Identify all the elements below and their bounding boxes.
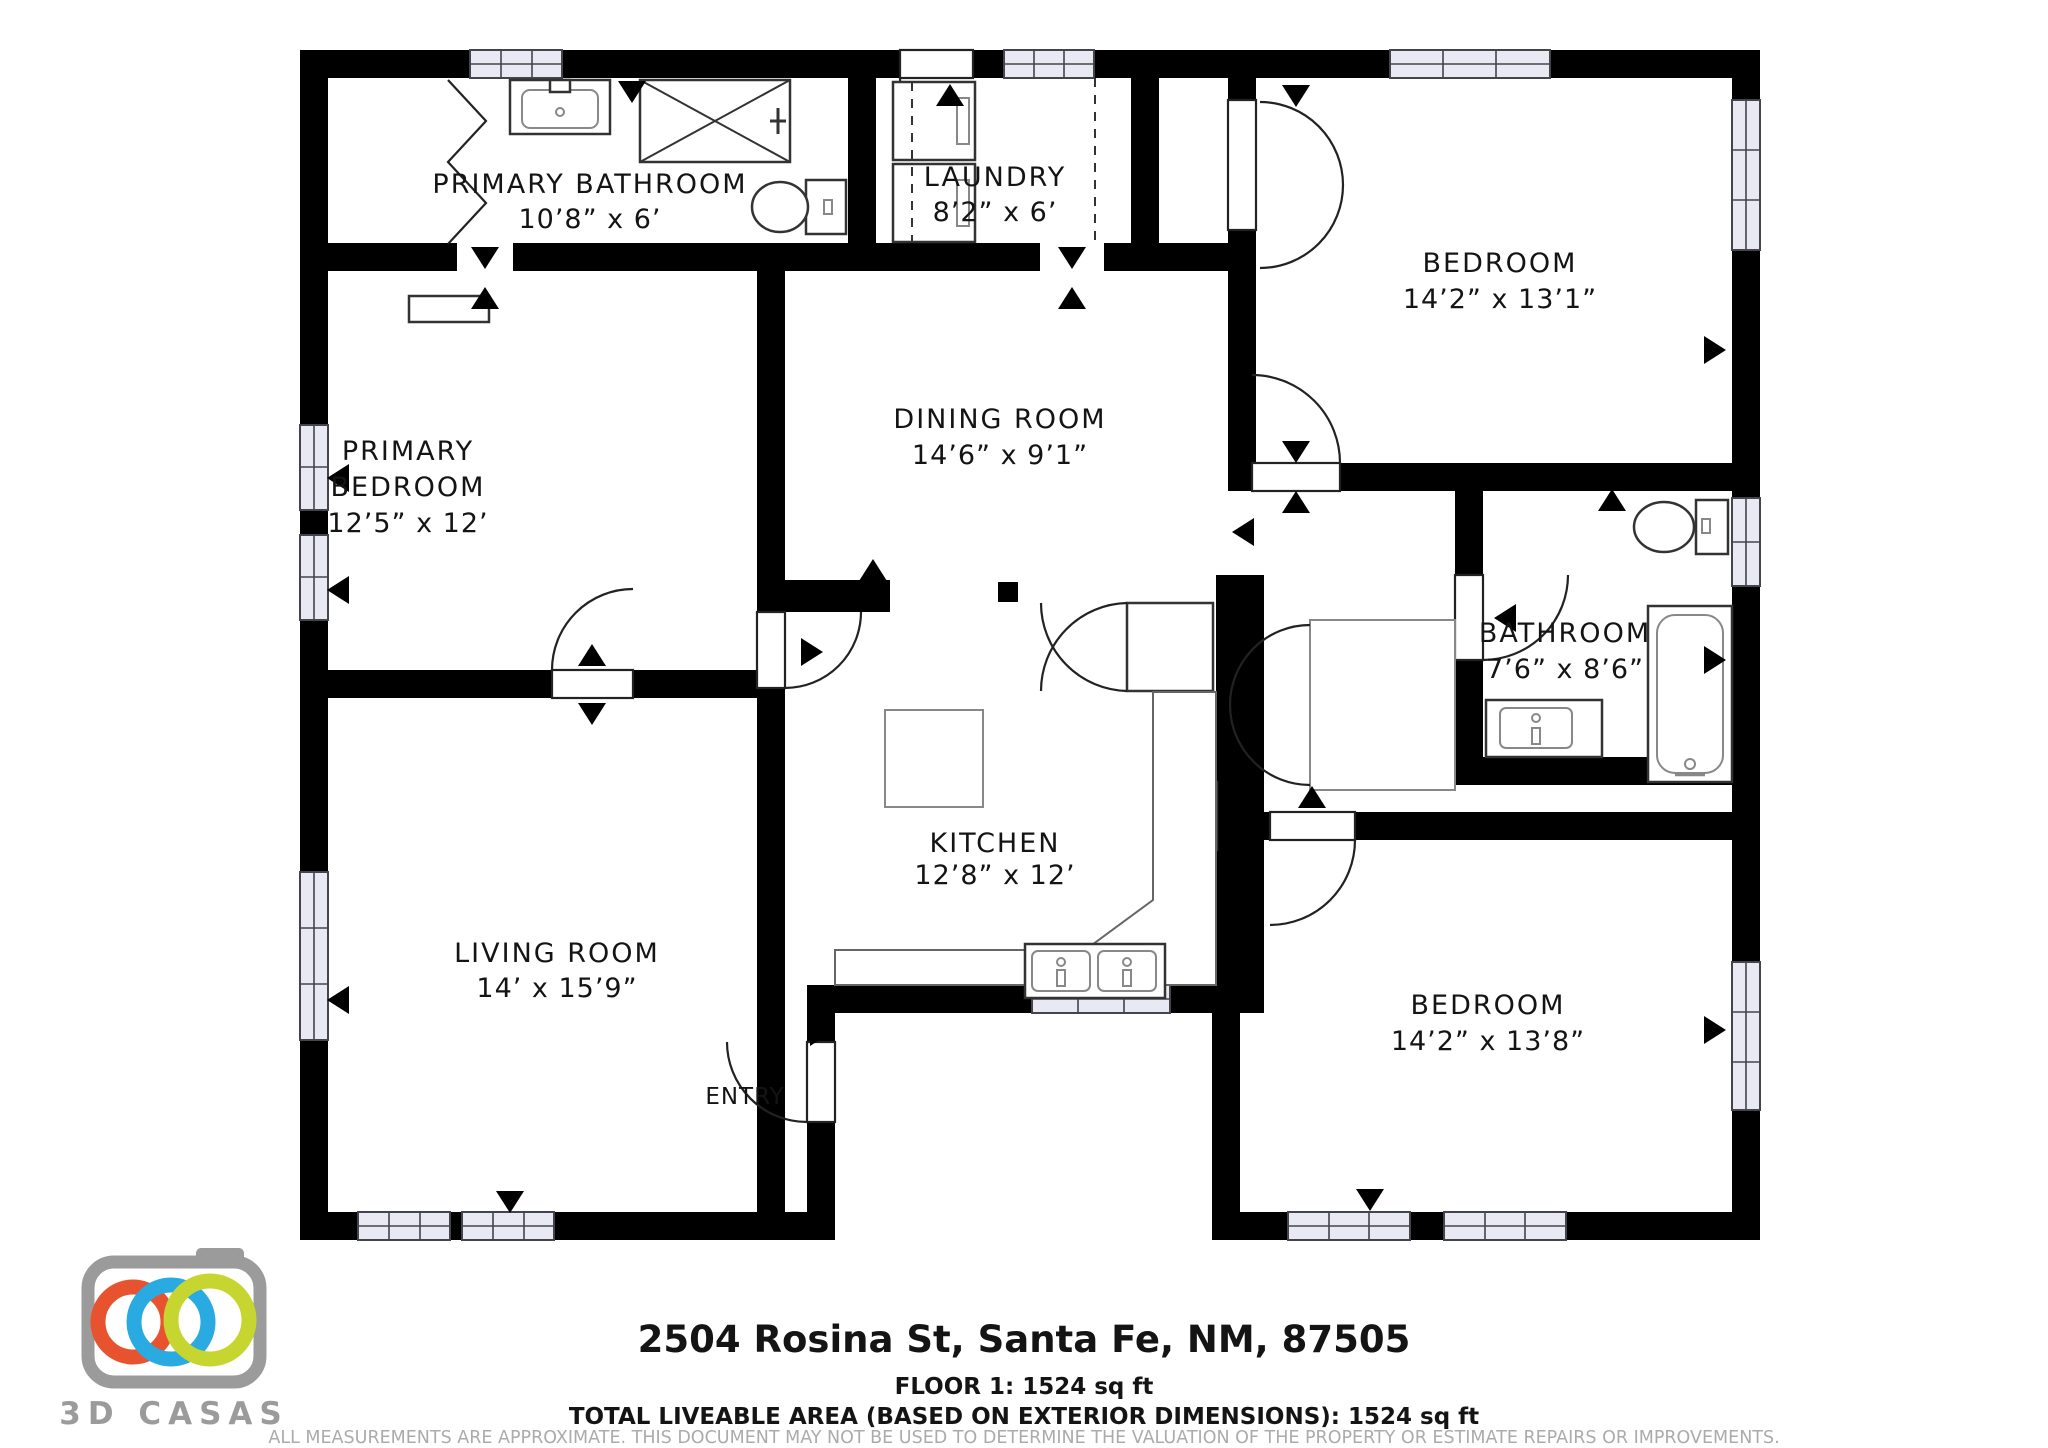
window-icon bbox=[462, 1212, 554, 1240]
window-icon bbox=[300, 425, 328, 510]
toilet-icon bbox=[752, 180, 846, 234]
dims-primary-bathroom: 10’8” x 6’ bbox=[518, 204, 661, 235]
disclaimer-line-1: ALL MEASUREMENTS ARE APPROXIMATE. THIS D… bbox=[268, 1428, 1779, 1448]
dims-dining-room: 14’6” x 9’1” bbox=[912, 440, 1088, 471]
dims-bedroom-bottom: 14’2” x 13’8” bbox=[1391, 1026, 1585, 1057]
fridge-icon bbox=[1041, 603, 1213, 691]
label-living-room: LIVING ROOM bbox=[454, 938, 660, 969]
kitchen-sink-icon bbox=[1025, 944, 1165, 998]
shower-icon bbox=[640, 80, 790, 162]
floor-area-text: FLOOR 1: 1524 sq ft bbox=[895, 1374, 1154, 1400]
dims-bedroom-top: 14’2” x 13’1” bbox=[1403, 284, 1597, 315]
bathroom-sink-icon bbox=[1486, 700, 1602, 757]
label-primary-bathroom: PRIMARY BATHROOM bbox=[432, 169, 747, 200]
dims-laundry: 8’2” x 6’ bbox=[933, 197, 1058, 228]
accordion-door-icon bbox=[448, 80, 486, 244]
window-icon bbox=[300, 872, 328, 1040]
company-logo: 3D CASAS bbox=[59, 1248, 288, 1432]
toilet-icon bbox=[1634, 500, 1728, 554]
total-area-text: TOTAL LIVEABLE AREA (BASED ON EXTERIOR D… bbox=[569, 1404, 1479, 1430]
label-entry: ENTRY bbox=[705, 1084, 784, 1110]
floor-plan-canvas: PRIMARY BATHROOM 10’8” x 6’ LAUNDRY 8’2”… bbox=[0, 0, 2048, 1448]
window-icon bbox=[1732, 962, 1760, 1110]
label-bedroom-bottom: BEDROOM bbox=[1411, 990, 1566, 1021]
bathroom-sink-icon bbox=[510, 80, 610, 134]
bathtub-icon bbox=[1648, 606, 1732, 782]
footer: 2504 Rosina St, Santa Fe, NM, 87505 FLOO… bbox=[268, 1318, 1779, 1448]
dims-living-room: 14’ x 15’9” bbox=[476, 973, 637, 1004]
window-icon bbox=[1732, 100, 1760, 250]
label-bathroom: BATHROOM bbox=[1479, 618, 1651, 649]
window-icon bbox=[300, 535, 328, 620]
window-icon bbox=[1732, 498, 1760, 586]
dims-primary-bedroom: 12’5” x 12’ bbox=[327, 508, 488, 539]
dims-bathroom: 7’6” x 8’6” bbox=[1486, 654, 1644, 685]
door-icon bbox=[1252, 375, 1340, 491]
logo-text: 3D CASAS bbox=[59, 1396, 288, 1432]
address-title: 2504 Rosina St, Santa Fe, NM, 87505 bbox=[638, 1318, 1411, 1361]
window-icon bbox=[470, 50, 562, 78]
floor-plan-page: PRIMARY BATHROOM 10’8” x 6’ LAUNDRY 8’2”… bbox=[0, 0, 2048, 1448]
label-dining-room: DINING ROOM bbox=[893, 404, 1106, 435]
label-bedroom-top: BEDROOM bbox=[1423, 248, 1578, 279]
window-icon bbox=[1288, 1212, 1410, 1240]
kitchen-island bbox=[885, 710, 983, 807]
window-icon bbox=[1390, 50, 1550, 78]
label-kitchen: KITCHEN bbox=[930, 828, 1061, 859]
window-icon bbox=[1004, 50, 1094, 78]
door-icon bbox=[552, 589, 633, 698]
window-icon bbox=[1444, 1212, 1566, 1240]
label-primary-bedroom-1: PRIMARY bbox=[342, 436, 474, 467]
label-primary-bedroom-2: BEDROOM bbox=[331, 472, 486, 503]
dims-kitchen: 12’8” x 12’ bbox=[914, 860, 1075, 891]
window-icon bbox=[358, 1212, 450, 1240]
door-icon bbox=[1270, 812, 1355, 925]
label-laundry: LAUNDRY bbox=[924, 162, 1066, 193]
